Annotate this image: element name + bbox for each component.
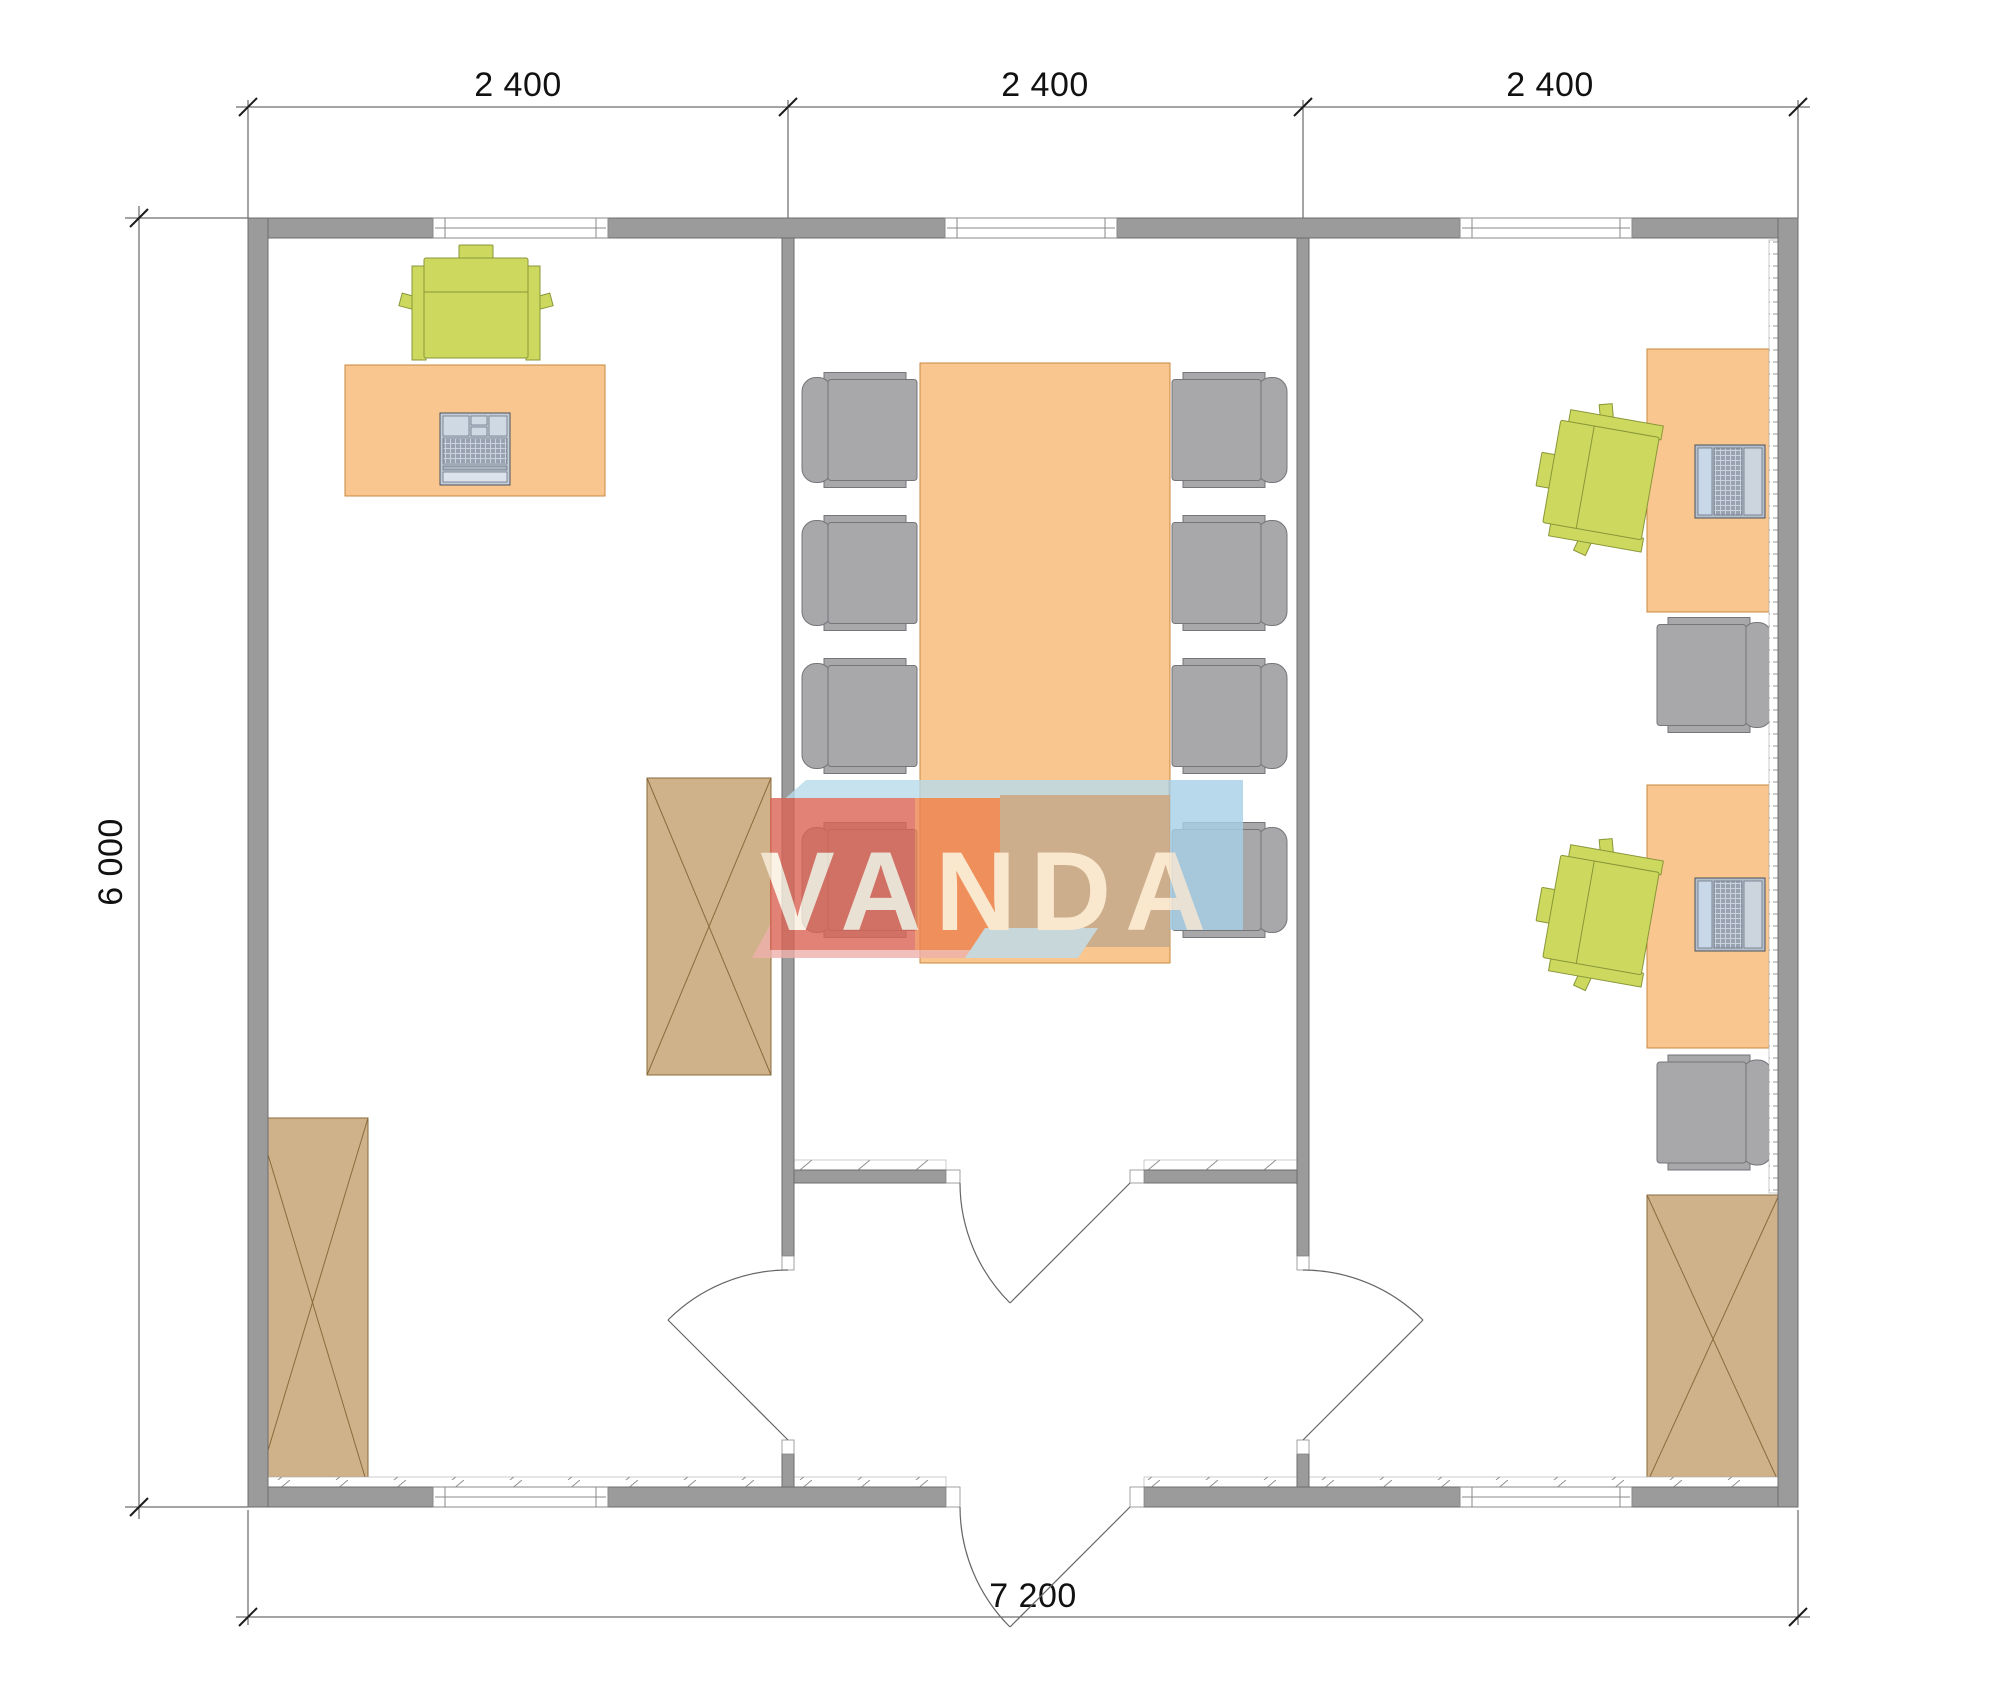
- laptop-icon: [1695, 445, 1765, 518]
- executive-chair-right-room-top: [1526, 393, 1666, 565]
- sill-hatch: [248, 1477, 946, 1487]
- right-wall: [1778, 218, 1798, 1507]
- bottom-wall-segment: [248, 1487, 433, 1507]
- door-jamb: [782, 1256, 794, 1270]
- sill-hatch: [1144, 1160, 1297, 1170]
- door-jamb: [946, 1487, 960, 1507]
- vestibule-wall-segment: [1144, 1170, 1297, 1183]
- keyboard-icon: [440, 413, 510, 485]
- door-jamb: [1297, 1256, 1309, 1270]
- partition-wall-right: [1297, 238, 1309, 1256]
- door-jamb: [782, 1440, 794, 1454]
- office-chair: [1657, 618, 1772, 733]
- door-middle-room: [960, 1183, 1130, 1303]
- right-wall-finish-ticks: [1769, 240, 1778, 1193]
- window-top-middle: [945, 218, 1117, 238]
- bottom-wall-segment: [1632, 1487, 1798, 1507]
- watermark-text: VANDA: [760, 829, 1220, 954]
- door-swing-arc: [1303, 1270, 1423, 1320]
- top-wall-segment: [1632, 218, 1798, 238]
- office-chair: [1657, 1055, 1772, 1170]
- dimension-label-top-2: 2 400: [1001, 66, 1089, 104]
- door-jamb: [1297, 1440, 1309, 1454]
- bottom-wall-segment: [1144, 1487, 1460, 1507]
- floor-plan-drawing: 2 400 2 400 2 400 6 000 7 200: [0, 0, 2000, 1704]
- dimension-label-bottom: 7 200: [989, 1577, 1077, 1615]
- cabinet-left-room-bottom: [257, 1118, 368, 1487]
- top-wall-segment: [608, 218, 945, 238]
- window-top-right: [1460, 218, 1632, 238]
- left-wall: [248, 218, 268, 1507]
- top-wall-segment: [1117, 218, 1460, 238]
- dimension-label-top-1: 2 400: [474, 66, 562, 104]
- bottom-wall-segment: [608, 1487, 946, 1507]
- top-wall-segment: [248, 218, 433, 238]
- conference-chair: [1172, 659, 1287, 774]
- door-leaf: [1303, 1320, 1423, 1440]
- vestibule-wall-segment: [794, 1170, 946, 1183]
- partition-wall-left-lower: [782, 1454, 794, 1487]
- conference-chair: [802, 373, 917, 488]
- floor-plan-sheet: 2 400 2 400 2 400 6 000 7 200: [0, 0, 2000, 1704]
- door-jamb: [946, 1170, 960, 1183]
- window-bottom-right: [1460, 1487, 1632, 1507]
- cabinet-right-room: [1647, 1195, 1779, 1483]
- cabinet-left-room-middle: [647, 778, 771, 1075]
- window-top-left: [433, 218, 608, 238]
- sill-hatch: [794, 1160, 946, 1170]
- dimension-label-left: 6 000: [92, 818, 130, 906]
- conference-chair: [802, 659, 917, 774]
- door-swing-arc: [960, 1183, 1010, 1303]
- executive-chair-left-room: [399, 245, 553, 360]
- laptop-icon: [1695, 878, 1765, 951]
- sill-hatch: [1144, 1477, 1798, 1487]
- partition-wall-right-lower: [1297, 1454, 1309, 1487]
- door-left-room: [668, 1270, 788, 1440]
- dimension-label-top-3: 2 400: [1506, 66, 1594, 104]
- conference-chair: [1172, 516, 1287, 631]
- door-leaf: [668, 1320, 788, 1440]
- door-jamb: [1130, 1487, 1144, 1507]
- door-jamb: [1130, 1170, 1144, 1183]
- partition-wall-left: [782, 238, 794, 1256]
- watermark-logo: VANDA: [752, 780, 1243, 958]
- window-bottom-left: [433, 1487, 608, 1507]
- conference-chair: [802, 516, 917, 631]
- door-right-room: [1303, 1270, 1423, 1440]
- door-leaf: [1010, 1183, 1130, 1303]
- conference-chair: [1172, 373, 1287, 488]
- door-swing-arc: [668, 1270, 788, 1320]
- executive-chair-right-room-bottom: [1526, 828, 1666, 1000]
